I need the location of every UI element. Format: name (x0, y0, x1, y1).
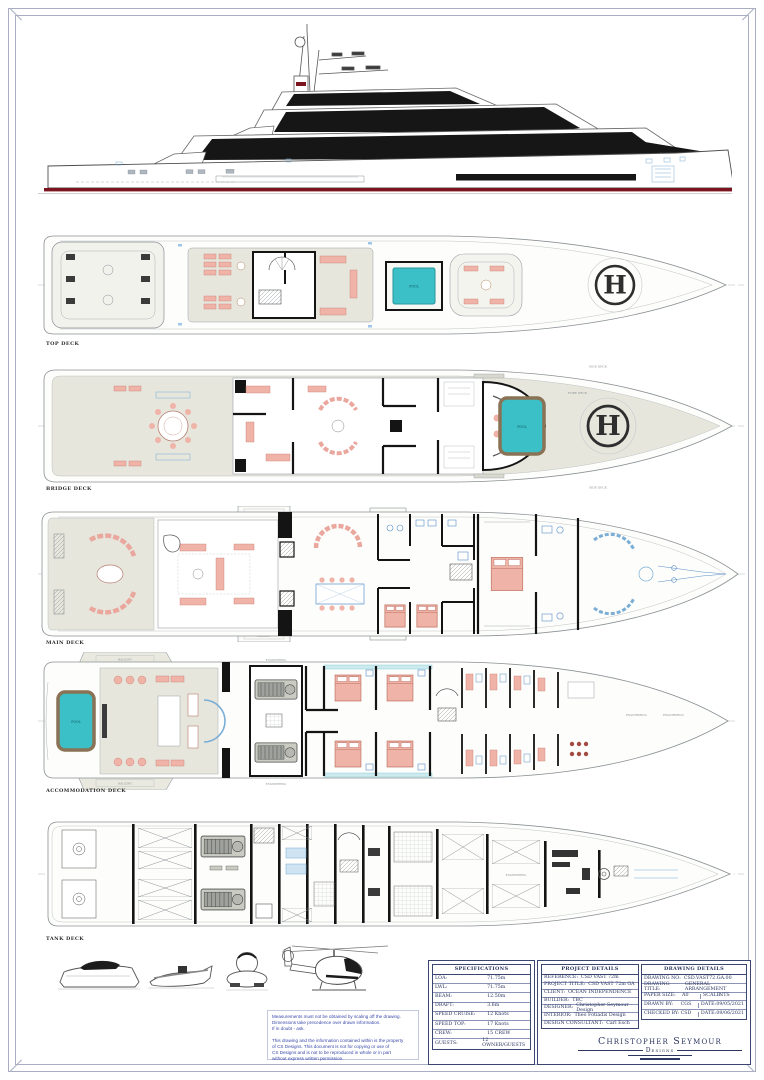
accommodation-deck-plan: BALCONY BALCONY POOL (38, 652, 748, 790)
logo-name: Christopher Seymour (578, 1037, 742, 1047)
table-cell: CHECKED BY: (644, 1012, 681, 1017)
aft-deck (48, 518, 154, 630)
table-row: DRAFT:3.6m (433, 1003, 530, 1012)
table-row: LWL:71.75m (433, 984, 530, 993)
rib-tender-icon (146, 958, 216, 994)
table-cell: DESIGNER: (544, 1006, 573, 1011)
svg-text:BALCONY: BALCONY (118, 782, 132, 786)
table-cell: GUESTS: (435, 1042, 482, 1047)
helipad: H (588, 258, 642, 312)
table-cell: 12 OWNER/GUESTS (482, 1039, 528, 1049)
table-cell: CSD VAST 72m (581, 976, 619, 981)
svg-text:POOL: POOL (71, 720, 81, 724)
table-row: SPEED TOP:17 Knots (433, 1021, 530, 1030)
note-line: This drawing and the information contain… (272, 1038, 414, 1044)
table-cell: 09/05/2021 (716, 1003, 744, 1008)
logo-underline-thick (640, 1058, 680, 1060)
table-cell: Theo Fotiadis Design (574, 1014, 625, 1019)
table-row: BEAM:12.50m (433, 993, 530, 1002)
main-deck-plan: BALCONY BALCONY BALCONY BALCONY (38, 506, 748, 642)
table-cell: 71.75m (487, 977, 505, 982)
table-cell: BUILDER: (544, 999, 569, 1004)
drawing-details-table: DRAWING DETAILS DRAWING NO:CSD.VAST72.GA… (641, 964, 747, 1020)
svg-text:H: H (603, 271, 627, 300)
table-cell: 3.6m (487, 1004, 499, 1009)
table-cell: CLIENT: (544, 991, 565, 996)
limo-tender-icon (56, 950, 142, 998)
svg-text:POOL: POOL (409, 285, 419, 289)
table-cell: OCEAN INDEPENDENCE (568, 991, 631, 996)
bridge-deck-pool: POOL (500, 398, 544, 454)
table-cell: 12 Knots (487, 1013, 509, 1018)
note-line: without express written permission. (272, 1056, 414, 1062)
table-cell: INTERIOR: (544, 1014, 571, 1019)
table-cell: A0 (682, 994, 700, 999)
aft-mast-platform (52, 242, 164, 328)
table-cell: CSD VAST 72m GA (588, 983, 634, 988)
top-deck-plan: POOL H (38, 226, 748, 344)
disclaimer-note: Measurements must not be obtained by sca… (267, 1010, 419, 1060)
table-cell: CGS (681, 1003, 698, 1008)
bridge-deck-plan: SIDE DECK SIDE DECK (38, 362, 748, 490)
table-cell: CSD.VAST72.GA.00 (684, 977, 732, 982)
deck-label-accommodation: ACCOMMODATION DECK (46, 788, 126, 794)
table-cell: Carl Esch (606, 1022, 630, 1027)
table-cell: LWL: (435, 986, 487, 991)
drawing-details-title: DRAWING DETAILS (642, 965, 746, 975)
table-row: GUESTS:12 OWNER/GUESTS (433, 1039, 530, 1048)
side-deck-label: SIDE DECK (589, 365, 608, 369)
submarine-icon (224, 948, 270, 994)
project-details-title: PROJECT DETAILS (542, 965, 638, 975)
deck-label-top: TOP DECK (46, 341, 79, 347)
svg-text:POOL: POOL (517, 425, 527, 429)
svg-text:ENGINEERING: ENGINEERING (266, 782, 287, 786)
mast (294, 24, 388, 92)
table-cell: SPEED CRUISE: (435, 1013, 487, 1018)
svg-text:ENGINEERING: ENGINEERING (266, 658, 287, 662)
table-cell: 09/06/2021 (716, 1012, 744, 1017)
fore-deck-label: FORE DECK (568, 391, 588, 395)
table-row: CLIENT:OCEAN INDEPENDENCE (542, 990, 638, 998)
table-cell: DATE: (698, 1012, 716, 1017)
logo-designs: Designs (646, 1048, 675, 1054)
tank-deck-plan: ENGINEERING (38, 808, 748, 938)
table-row: DESIGN CONSULTANT:Carl Esch (542, 1021, 638, 1029)
svg-text:ENGINEERING: ENGINEERING (506, 873, 527, 877)
side-deck-label: SIDE DECK (589, 486, 608, 490)
table-cell: DESIGN CONSULTANT: (544, 1022, 603, 1027)
table-row: CHECKED BY:CSDDATE:09/06/2021 (642, 1010, 746, 1019)
table-cell: SPEED TOP: (435, 1023, 487, 1028)
project-details-table: PROJECT DETAILS REFERENCE:CSD VAST 72mPR… (541, 964, 639, 1029)
table-cell: 12.50m (487, 995, 505, 1000)
drawing-sheet: POOL H TOP DECK SIDE DECK SIDE DECK (0, 0, 764, 1080)
deck-label-bridge: BRIDGE DECK (46, 486, 92, 492)
table-cell: SCALE: (700, 994, 719, 999)
table-cell: DRAWING TITLE: (644, 983, 682, 993)
yacht-profile-view (36, 16, 732, 212)
table-cell: DRAWING NO: (644, 977, 681, 982)
table-row: PAPER SIZE:A0SCALE:NTS (642, 993, 746, 1002)
table-row: DESIGNER:Christopher Seymour Design (542, 1005, 638, 1013)
table-cell: LOA: (435, 977, 487, 982)
specifications-title: SPECIFICATIONS (433, 965, 530, 975)
specifications-table: SPECIFICATIONS LOA:71.75mLWL:71.75mBEAM:… (432, 964, 531, 1050)
svg-text:ENGINEERING: ENGINEERING (626, 713, 647, 717)
deck-label-tank: TANK DECK (46, 936, 84, 942)
table-cell: NTS (719, 994, 744, 999)
logo-rule-left (578, 1050, 643, 1051)
table-cell: 71.75m (487, 986, 505, 991)
table-cell: REFERENCE: (544, 976, 578, 981)
table-row: SPEED CRUISE:12 Knots (433, 1012, 530, 1021)
table-cell: DATE: (698, 1003, 716, 1008)
table-cell: GENERAL ARRANGEMENT (685, 983, 744, 993)
table-cell: 17 Knots (487, 1023, 509, 1028)
skylounge-interior (233, 378, 483, 474)
table-row: DRAWING TITLE:GENERAL ARRANGEMENT (642, 984, 746, 993)
formal-lounge (158, 512, 294, 636)
table-cell: PAPER SIZE: (644, 994, 682, 999)
svg-text:ENGINEERING: ENGINEERING (663, 713, 684, 717)
logo-underline (628, 1055, 692, 1056)
logo-rule-right (677, 1050, 742, 1051)
table-row: INTERIOR:Theo Fotiadis Design (542, 1013, 638, 1021)
table-row: LOA:71.75m (433, 975, 530, 984)
table-cell: CREW: (435, 1032, 487, 1037)
forward-lounge (450, 254, 522, 316)
beach-club (100, 668, 225, 774)
svg-text:H: H (595, 411, 621, 442)
designer-logo: Christopher Seymour Designs (578, 1037, 742, 1060)
deck-label-main: MAIN DECK (46, 640, 84, 646)
table-cell: DRAWN BY: (644, 1003, 681, 1008)
table-cell: PROJECT TITLE: (544, 983, 585, 988)
svg-text:BALCONY: BALCONY (118, 658, 132, 662)
table-cell: DRAFT: (435, 1004, 487, 1009)
top-deck-pool: POOL (386, 262, 442, 310)
helipad: H (580, 398, 636, 454)
helicopter-icon (274, 942, 394, 998)
table-cell: 15 CREW (487, 1032, 510, 1037)
table-row: DRAWN BY:CGSDATE:09/05/2021 (642, 1001, 746, 1010)
table-cell: CSD (681, 1012, 698, 1017)
table-cell: BEAM: (435, 995, 487, 1000)
waterline-stripe (44, 188, 732, 191)
